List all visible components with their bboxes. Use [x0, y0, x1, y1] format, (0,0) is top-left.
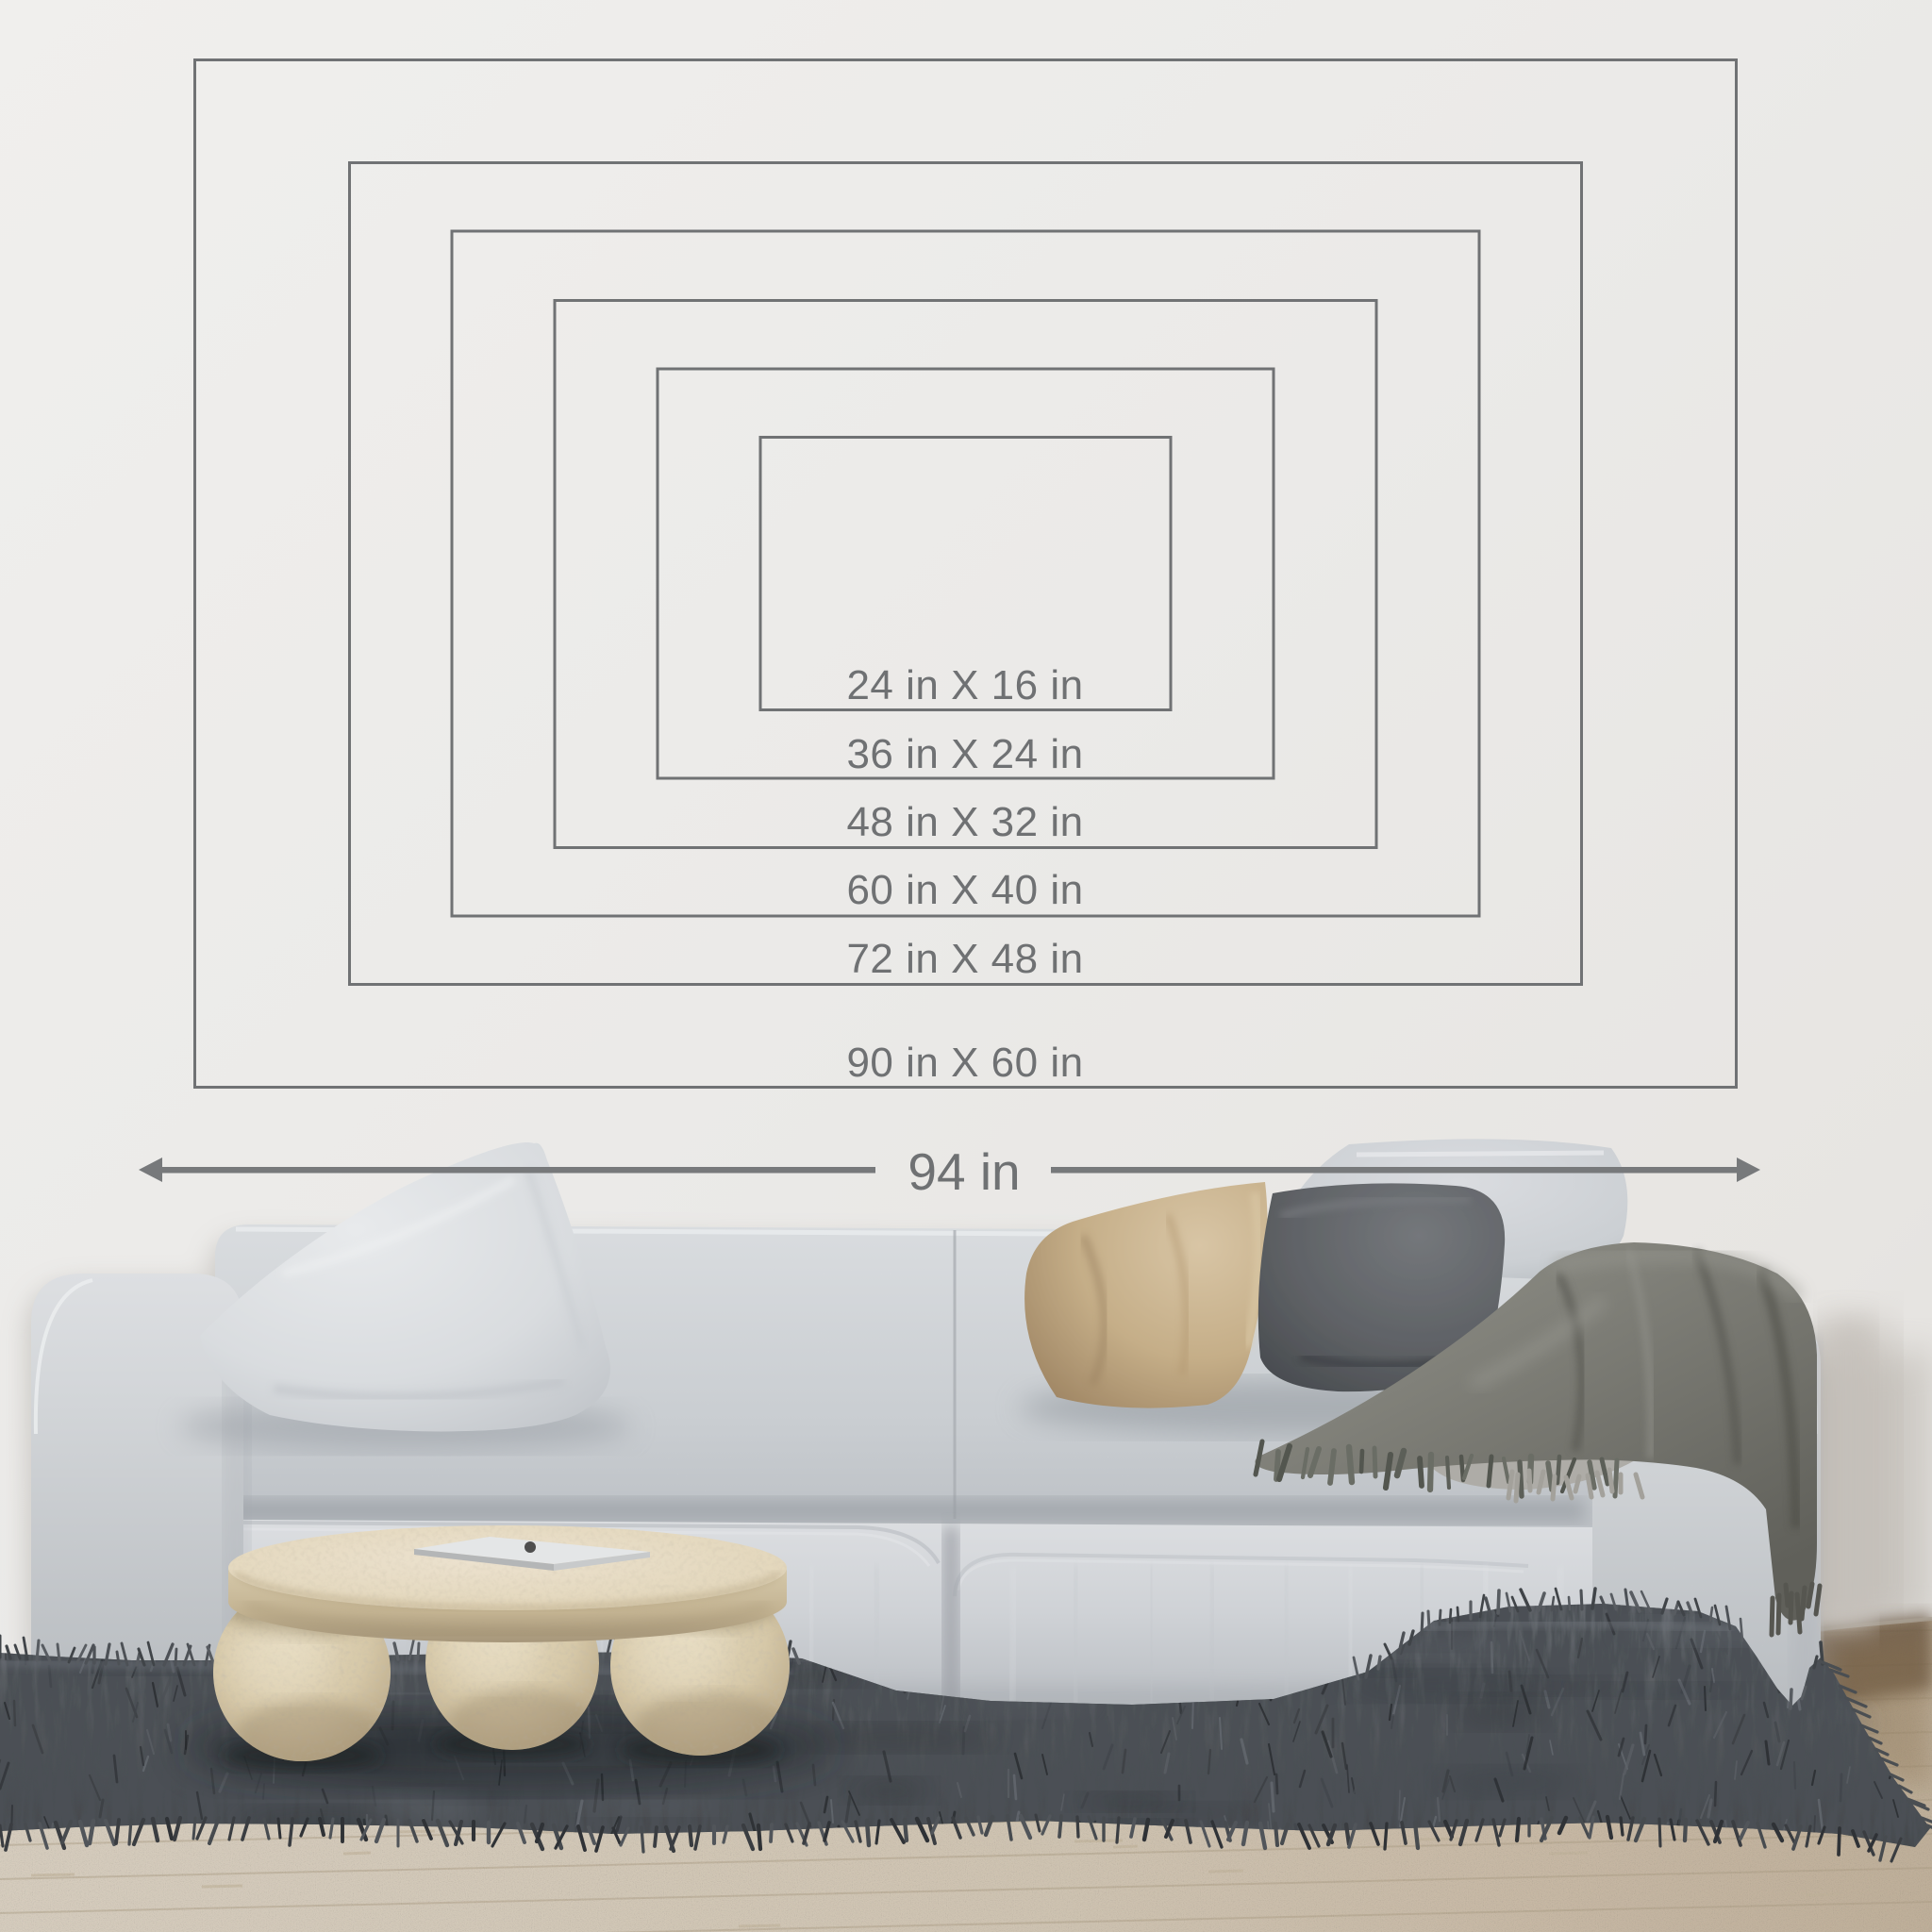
svg-text:48 in X 32 in: 48 in X 32 in [846, 799, 1083, 845]
svg-text:24 in X 16 in: 24 in X 16 in [846, 662, 1083, 708]
svg-text:90 in X 60 in: 90 in X 60 in [846, 1040, 1083, 1086]
svg-text:72 in X 48 in: 72 in X 48 in [846, 936, 1083, 982]
svg-text:94 in: 94 in [908, 1142, 1020, 1201]
svg-text:36 in X 24 in: 36 in X 24 in [846, 731, 1083, 777]
svg-text:60 in X 40 in: 60 in X 40 in [846, 867, 1083, 913]
